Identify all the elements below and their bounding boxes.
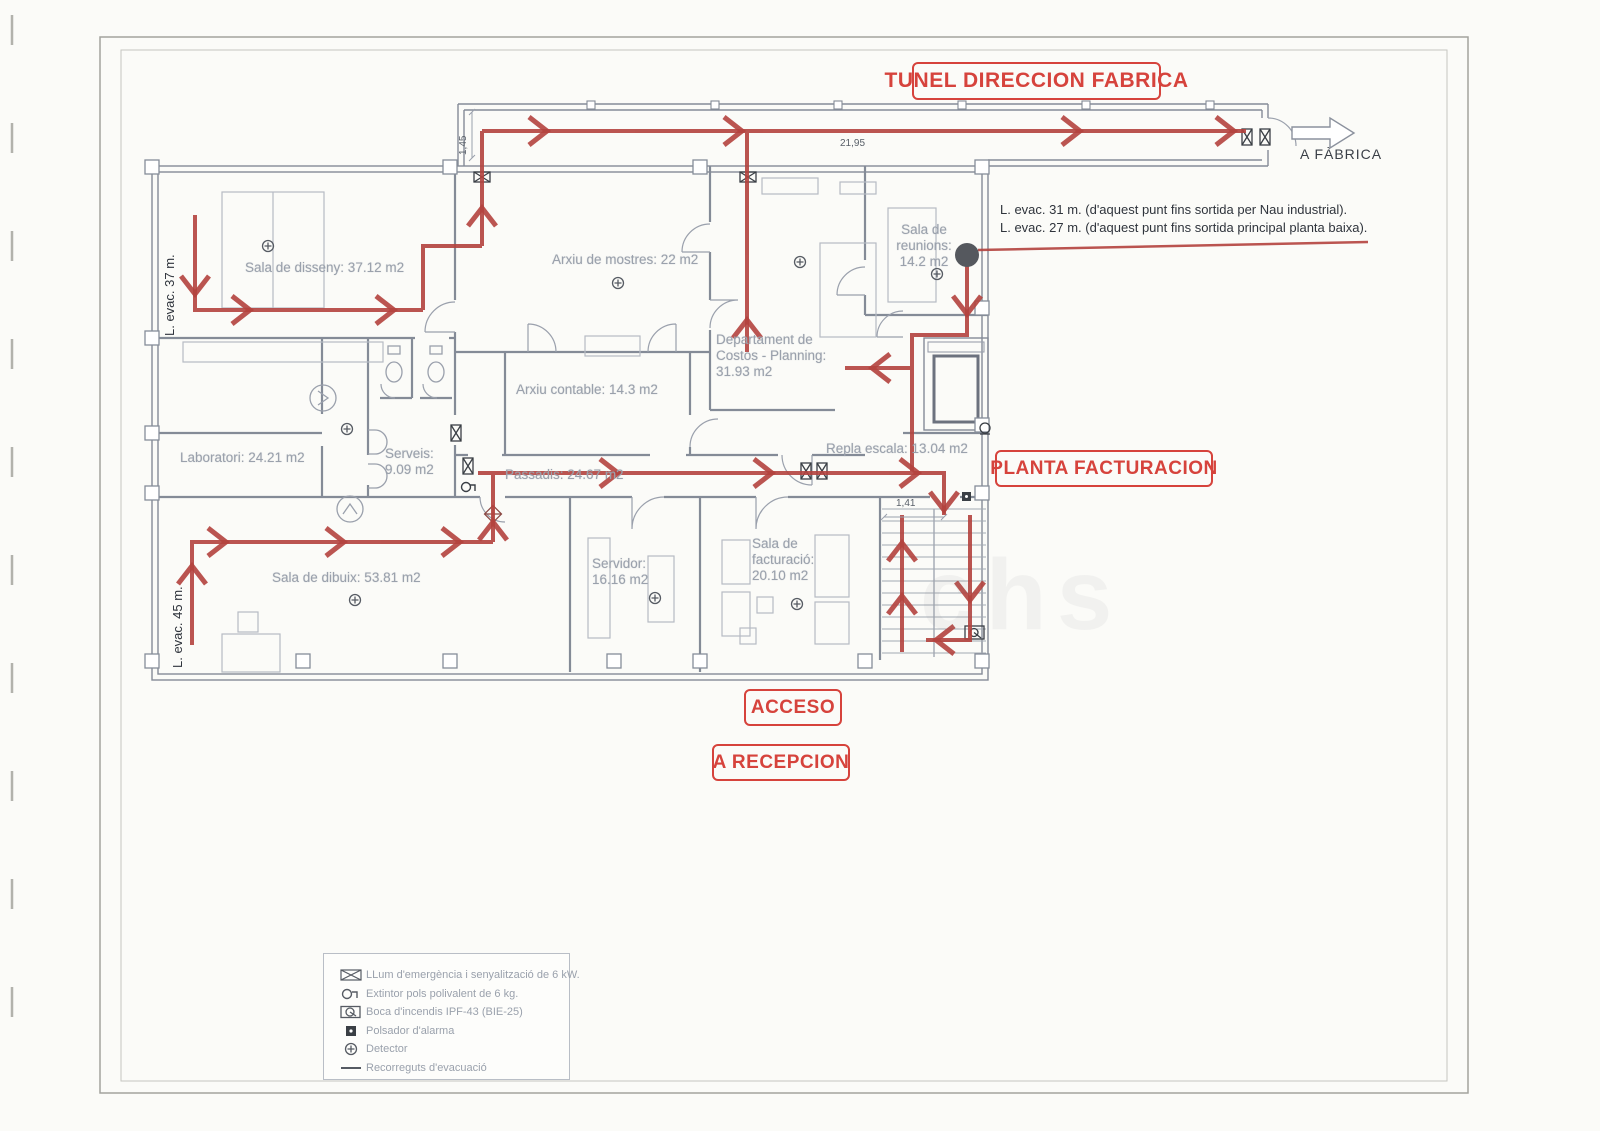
room-label-serveis: Serveis: 9.09 m2 [385, 446, 449, 478]
evacuation-route-icon [336, 1060, 366, 1076]
evac-note-line1: L. evac. 31 m. (d'aquest punt fins sorti… [1000, 202, 1347, 217]
a-fabrica-label: A FÀBRICA [1300, 146, 1382, 162]
extinguisher-icon [336, 986, 366, 1002]
columns [145, 160, 989, 668]
legend-item-label: LLum d'emergència i senyalització de 6 k… [366, 969, 580, 981]
emergency-light-icon [336, 967, 366, 983]
legend-item: Boca d'incendis IPF-43 (BIE-25) [336, 1003, 569, 1022]
fire-hose-icon [336, 1004, 366, 1020]
room-label-sala-de-facturacio: Sala de facturació: 20.10 m2 [752, 536, 844, 585]
interior-walls [152, 166, 988, 672]
legend-item-label: Polsador d'alarma [366, 1025, 454, 1037]
legend-item-label: Boca d'incendis IPF-43 (BIE-25) [366, 1006, 523, 1018]
alarm-button-icon [962, 492, 971, 501]
legend-item: Polsador d'alarma [336, 1022, 569, 1041]
legend-item-label: Recorreguts d'evacuació [366, 1062, 487, 1074]
room-label-repla-escala: Repla escala: 13.04 m2 [826, 441, 1036, 457]
legend: LLum d'emergència i senyalització de 6 k… [323, 953, 570, 1080]
legend-item: Recorreguts d'evacuació [336, 1059, 569, 1078]
extinguisher-icons [462, 483, 476, 492]
dimension-lines [881, 514, 947, 520]
legend-item-label: Detector [366, 1043, 408, 1055]
stair-width-dimension: 1,41 [896, 498, 915, 509]
elevator [924, 338, 988, 430]
watermark: chs [920, 538, 1122, 653]
room-label-departament-costos: Departament de Costos - Planning: 31.93 … [716, 332, 846, 381]
tunnel-width-dimension: 1,45 [458, 136, 469, 155]
legend-item-label: Extintor pols polivalent de 6 kg. [366, 988, 518, 1000]
tunnel-length-dimension: 21,95 [840, 138, 865, 149]
evac-note-line2: L. evac. 27 m. (d'aquest punt fins sorti… [1000, 220, 1367, 235]
room-label-sala-de-reunions: Sala de reunions: 14.2 m2 [882, 222, 966, 271]
sanitary-fixtures [310, 346, 444, 522]
banner-a-recepcion: A RECEPCION [712, 744, 850, 781]
room-label-sala-de-disseny: Sala de disseny: 37.12 m2 [245, 260, 475, 276]
tunnel-walls [458, 101, 1296, 166]
legend-item: Detector [336, 1040, 569, 1059]
legend-item: Extintor pols polivalent de 6 kg. [336, 985, 569, 1004]
room-label-passadis: Passadis: 24.67 m2 [505, 467, 715, 483]
room-label-laboratori: Laboratori: 24.21 m2 [180, 450, 390, 466]
exit-arrow-icon [1292, 118, 1354, 148]
legend-item: LLum d'emergència i senyalització de 6 k… [336, 966, 569, 985]
alarm-button-icon [336, 1023, 366, 1039]
banner-acceso: ACCESO [744, 689, 842, 726]
evac-length-label-bottom: L. evac. 45 m. [170, 586, 185, 668]
room-label-sala-de-dibuix: Sala de dibuix: 53.81 m2 [272, 570, 502, 586]
evac-length-label-top: L. evac. 37 m. [162, 254, 177, 336]
scanned-evacuation-plan: TUNEL DIRECCION FABRICA PLANTA FACTURACI… [0, 0, 1600, 1131]
room-label-arxiu-de-mostres: Arxiu de mostres: 22 m2 [552, 252, 782, 268]
room-label-servidor: Servidor: 16.16 m2 [592, 556, 670, 588]
room-label-arxiu-contable: Arxiu contable: 14.3 m2 [516, 382, 726, 398]
banner-tunel-direccion-fabrica: TUNEL DIRECCION FABRICA [912, 62, 1161, 100]
detector-icon [336, 1041, 366, 1057]
